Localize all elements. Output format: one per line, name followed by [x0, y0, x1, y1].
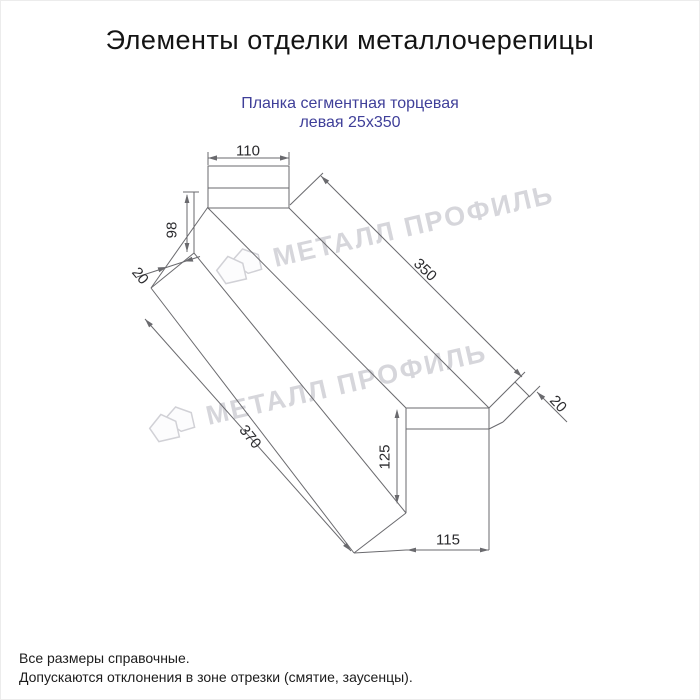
far-end-face — [151, 192, 208, 288]
strip-body — [151, 208, 489, 553]
dimension-350 — [290, 173, 525, 382]
dim-label-far-height: 98 — [164, 222, 181, 239]
far-end-cap — [208, 166, 289, 208]
footer-note-1: Все размеры справочные. — [19, 649, 413, 668]
product-name: Планка сегментная торцевая левая 25x350 — [1, 94, 699, 132]
page-title: Элементы отделки металлочерепицы — [1, 25, 699, 56]
product-name-line2: левая 25x350 — [1, 113, 699, 132]
dimension-125 — [395, 409, 400, 504]
dim-label-near-width: 115 — [436, 532, 460, 549]
dimension-98 — [183, 192, 199, 252]
product-name-line1: Планка сегментная торцевая — [1, 94, 699, 113]
footer-note-2: Допускаются отклонения в зоне отрезки (с… — [19, 668, 413, 687]
dim-label-top-width: 110 — [236, 143, 260, 160]
footer-notes: Все размеры справочные. Допускаются откл… — [19, 649, 413, 687]
page: Элементы отделки металлочерепицы Планка … — [0, 0, 700, 700]
dim-label-near-height: 125 — [377, 444, 394, 469]
